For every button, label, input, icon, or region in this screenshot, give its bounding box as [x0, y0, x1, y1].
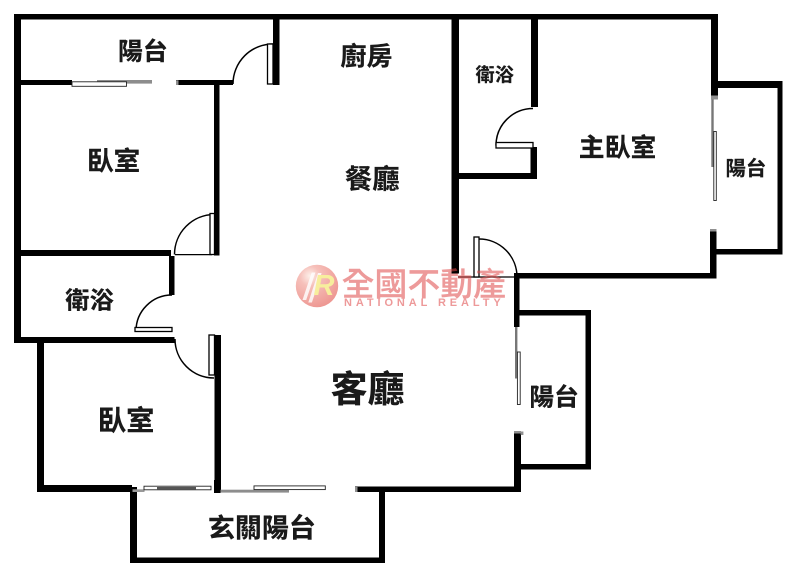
svg-text:NATIONAL REALTY: NATIONAL REALTY — [344, 297, 505, 309]
svg-text:R: R — [314, 270, 335, 302]
